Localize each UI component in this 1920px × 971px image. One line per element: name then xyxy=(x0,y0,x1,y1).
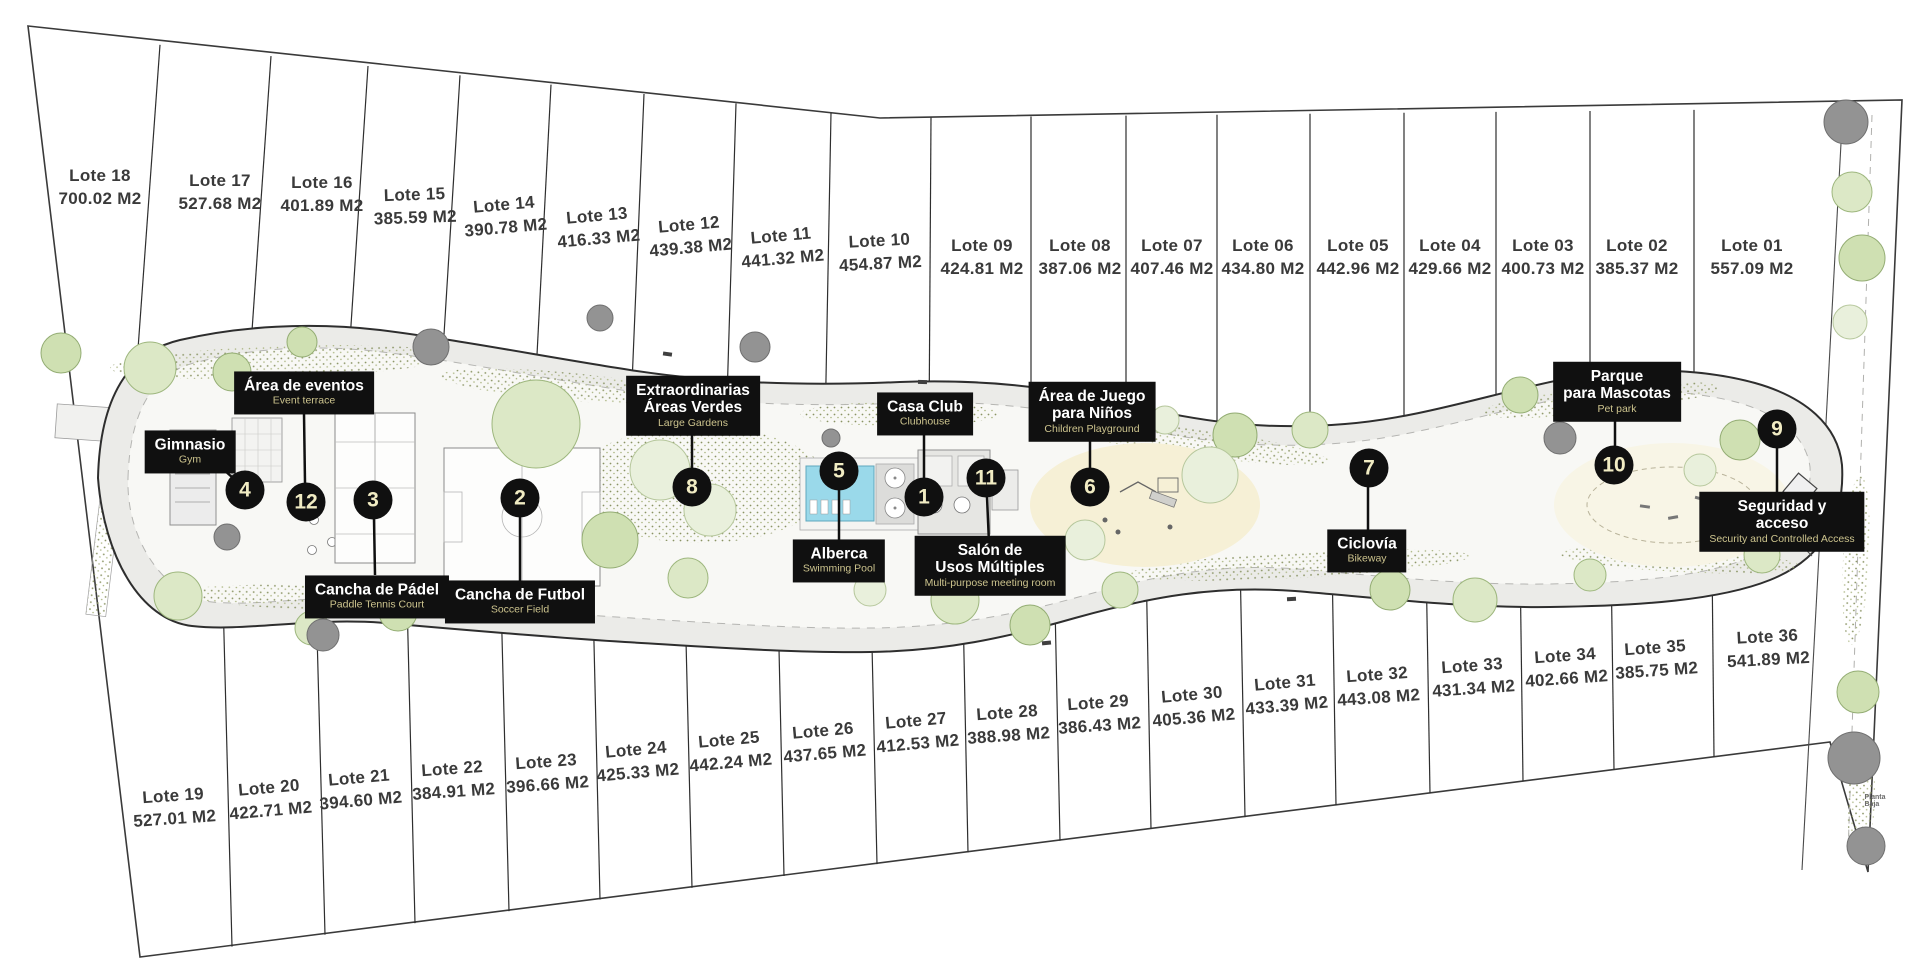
amenity-label-futbol: Cancha de FutbolSoccer Field xyxy=(445,580,595,623)
pool-area xyxy=(800,458,920,530)
green-tree xyxy=(41,333,81,373)
lot-name: Lote 07 xyxy=(1130,235,1213,258)
amenity-title: Parque para Mascotas xyxy=(1563,368,1671,403)
lot-name: Lote 05 xyxy=(1316,235,1399,258)
lot-area: 424.81 M2 xyxy=(940,258,1023,281)
gray-tree xyxy=(307,619,339,651)
amenity-label-seguridad: Seguridad y accesoSecurity and Controlle… xyxy=(1699,492,1864,552)
lot-label-7: Lote 07407.46 M2 xyxy=(1130,235,1213,281)
lot-name: Lote 15 xyxy=(373,183,457,209)
green-tree xyxy=(1010,605,1050,645)
green-tree xyxy=(1182,447,1238,503)
lot-area: 454.87 M2 xyxy=(839,251,923,278)
lot-label-18: Lote 18700.02 M2 xyxy=(58,165,141,211)
amenity-subtitle: Security and Controlled Access xyxy=(1709,533,1854,545)
lot-label-8: Lote 08387.06 M2 xyxy=(1038,235,1121,281)
amenity-title: Cancha de Pádel xyxy=(315,581,439,598)
green-tree xyxy=(1065,520,1105,560)
gray-tree xyxy=(740,332,770,362)
lot-label-11: Lote 11441.32 M2 xyxy=(739,222,826,275)
green-tree xyxy=(1102,572,1138,608)
green-tree xyxy=(1370,570,1410,610)
green-tree xyxy=(1453,578,1497,622)
amenity-title: Extraordinarias Áreas Verdes xyxy=(636,382,750,417)
amenity-title: Alberca xyxy=(803,545,875,562)
green-tree xyxy=(124,342,176,394)
lot-name: Lote 01 xyxy=(1710,235,1793,258)
amenity-label-areas-verdes: Extraordinarias Áreas VerdesLarge Garden… xyxy=(626,376,760,436)
lot-label-10: Lote 10454.87 M2 xyxy=(837,228,922,278)
lot-label-28: Lote 28388.98 M2 xyxy=(965,699,1051,751)
lot-name: Lote 04 xyxy=(1408,235,1491,258)
green-tree xyxy=(1720,420,1760,460)
lot-label-15: Lote 15385.59 M2 xyxy=(373,183,458,232)
lot-label-34: Lote 34402.66 M2 xyxy=(1523,642,1609,694)
lot-name: Lote 17 xyxy=(178,170,261,193)
gray-tree xyxy=(1824,100,1868,144)
amenity-subtitle: Large Gardens xyxy=(636,417,750,429)
lot-label-3: Lote 03400.73 M2 xyxy=(1501,235,1584,281)
amenity-title: Área de eventos xyxy=(244,377,364,394)
gray-tree xyxy=(1847,827,1885,865)
amenity-label-mascotas: Parque para MascotasPet park xyxy=(1553,362,1681,422)
amenity-subtitle: Swimming Pool xyxy=(803,564,875,576)
amenity-title: Ciclovía xyxy=(1337,535,1396,552)
lot-area: 700.02 M2 xyxy=(58,188,141,211)
amenity-title: Gimnasio xyxy=(155,436,226,453)
amenity-subtitle: Soccer Field xyxy=(455,605,585,617)
gray-tree xyxy=(822,429,840,447)
amenity-title: Seguridad y acceso xyxy=(1709,498,1854,533)
amenity-label-eventos: Área de eventosEvent terrace xyxy=(234,371,374,414)
amenity-marker-padel: 3 xyxy=(354,481,393,520)
lot-label-13: Lote 13416.33 M2 xyxy=(555,202,642,255)
amenity-marker-futbol: 2 xyxy=(501,479,540,518)
amenity-subtitle: Paddle Tennis Court xyxy=(315,600,439,612)
lot-area: 429.66 M2 xyxy=(1408,258,1491,281)
lot-area: 434.80 M2 xyxy=(1221,258,1304,281)
amenity-subtitle: Children Playground xyxy=(1039,423,1146,435)
lot-label-17: Lote 17527.68 M2 xyxy=(178,170,261,216)
lot-label-16: Lote 16401.89 M2 xyxy=(280,172,363,218)
lot-label-31: Lote 31433.39 M2 xyxy=(1243,669,1330,722)
lot-area: 400.73 M2 xyxy=(1501,258,1584,281)
amenity-marker-gimnasio: 4 xyxy=(226,471,265,510)
lot-label-20: Lote 20422.71 M2 xyxy=(227,774,314,827)
amenity-marker-mascotas: 10 xyxy=(1595,446,1634,485)
lot-label-25: Lote 25442.24 M2 xyxy=(687,726,774,779)
lot-area: 401.89 M2 xyxy=(280,195,363,218)
green-tree xyxy=(154,572,202,620)
lot-area: 385.59 M2 xyxy=(374,206,458,232)
amenity-label-ciclovia: CiclovíaBikeway xyxy=(1327,529,1406,572)
amenity-subtitle: Clubhouse xyxy=(887,417,963,429)
amenity-marker-eventos: 12 xyxy=(287,483,326,522)
amenity-title: Casa Club xyxy=(887,398,963,415)
amenity-marker-alberca: 5 xyxy=(820,452,859,491)
amenity-subtitle: Event terrace xyxy=(244,396,364,408)
amenity-title: Salón de Usos Múltiples xyxy=(925,542,1056,577)
amenity-marker-salon-usos: 11 xyxy=(967,459,1006,498)
lot-label-12: Lote 12439.38 M2 xyxy=(647,211,734,264)
lot-area: 527.68 M2 xyxy=(178,193,261,216)
lot-label-9: Lote 09424.81 M2 xyxy=(940,235,1023,281)
green-tree xyxy=(1833,305,1867,339)
master-plan: Lote 18700.02 M2Lote 17527.68 M2Lote 164… xyxy=(0,0,1920,971)
green-tree xyxy=(1502,377,1538,413)
lot-area: 385.37 M2 xyxy=(1595,258,1678,281)
lot-label-35: Lote 35385.75 M2 xyxy=(1613,634,1699,686)
lot-name: Lote 08 xyxy=(1038,235,1121,258)
gray-tree xyxy=(214,524,240,550)
lot-label-19: Lote 19527.01 M2 xyxy=(131,782,217,834)
amenity-label-salon-usos: Salón de Usos MúltiplesMulti-purpose mee… xyxy=(915,536,1066,596)
green-tree xyxy=(287,327,317,357)
green-tree xyxy=(1574,559,1606,591)
lot-name: Lote 06 xyxy=(1221,235,1304,258)
green-tree xyxy=(1684,454,1716,486)
plan-footnote: Planta Baja xyxy=(1865,794,1902,808)
amenity-label-juego-ninos: Área de Juego para NiñosChildren Playgro… xyxy=(1029,382,1156,442)
lot-area: 387.06 M2 xyxy=(1038,258,1121,281)
amenity-marker-seguridad: 9 xyxy=(1758,410,1797,449)
amenity-marker-ciclovia: 7 xyxy=(1350,449,1389,488)
amenity-title: Cancha de Futbol xyxy=(455,586,585,603)
lot-label-27: Lote 27412.53 M2 xyxy=(874,707,961,760)
label-stem-eventos xyxy=(304,414,305,483)
lot-label-33: Lote 33431.34 M2 xyxy=(1430,652,1516,704)
lot-label-21: Lote 21394.60 M2 xyxy=(317,764,404,817)
amenity-marker-areas-verdes: 8 xyxy=(673,468,712,507)
green-tree xyxy=(1839,235,1885,281)
green-tree xyxy=(492,380,580,468)
amenity-subtitle: Bikeway xyxy=(1337,554,1396,566)
amenity-subtitle: Multi-purpose meeting room xyxy=(925,577,1056,589)
green-tree xyxy=(582,512,638,568)
lot-name: Lote 03 xyxy=(1501,235,1584,258)
green-tree xyxy=(1292,412,1328,448)
lot-label-5: Lote 05442.96 M2 xyxy=(1316,235,1399,281)
lot-label-30: Lote 30405.36 M2 xyxy=(1150,681,1237,734)
gray-tree xyxy=(587,305,613,331)
amenity-marker-juego-ninos: 6 xyxy=(1071,468,1110,507)
lot-label-6: Lote 06434.80 M2 xyxy=(1221,235,1304,281)
lot-area: 541.89 M2 xyxy=(1727,647,1811,674)
gray-tree xyxy=(1544,422,1576,454)
green-tree xyxy=(668,558,708,598)
amenity-title: Área de Juego para Niños xyxy=(1039,388,1146,423)
lot-label-32: Lote 32443.08 M2 xyxy=(1335,661,1421,713)
green-tree xyxy=(1832,172,1872,212)
amenity-label-padel: Cancha de PádelPaddle Tennis Court xyxy=(305,575,449,618)
lot-area: 407.46 M2 xyxy=(1130,258,1213,281)
gray-tree xyxy=(1828,732,1880,784)
lot-name: Lote 18 xyxy=(58,165,141,188)
lot-label-23: Lote 23396.66 M2 xyxy=(504,748,590,800)
label-stem-padel xyxy=(374,519,375,575)
amenity-marker-casa-club: 1 xyxy=(905,478,944,517)
amenity-label-casa-club: Casa ClubClubhouse xyxy=(877,392,973,435)
lot-label-22: Lote 22384.91 M2 xyxy=(410,755,496,807)
lot-name: Lote 02 xyxy=(1595,235,1678,258)
amenity-label-alberca: AlbercaSwimming Pool xyxy=(793,539,885,582)
green-tree xyxy=(1837,671,1879,713)
lot-area: 442.96 M2 xyxy=(1316,258,1399,281)
lot-label-29: Lote 29386.43 M2 xyxy=(1056,689,1142,741)
gray-tree xyxy=(413,329,449,365)
lot-name: Lote 09 xyxy=(940,235,1023,258)
amenity-label-gimnasio: GimnasioGym xyxy=(145,430,236,473)
lot-name: Lote 16 xyxy=(280,172,363,195)
lot-label-24: Lote 24425.33 M2 xyxy=(594,736,681,789)
lot-label-1: Lote 01557.09 M2 xyxy=(1710,235,1793,281)
amenity-subtitle: Pet park xyxy=(1563,403,1671,415)
lot-area: 557.09 M2 xyxy=(1710,258,1793,281)
lot-label-4: Lote 04429.66 M2 xyxy=(1408,235,1491,281)
lot-label-2: Lote 02385.37 M2 xyxy=(1595,235,1678,281)
lot-label-26: Lote 26437.65 M2 xyxy=(781,717,868,770)
amenity-subtitle: Gym xyxy=(155,455,226,467)
lot-label-36: Lote 36541.89 M2 xyxy=(1725,624,1810,674)
site-plan-svg xyxy=(0,0,1920,971)
lot-label-14: Lote 14390.78 M2 xyxy=(462,191,549,244)
